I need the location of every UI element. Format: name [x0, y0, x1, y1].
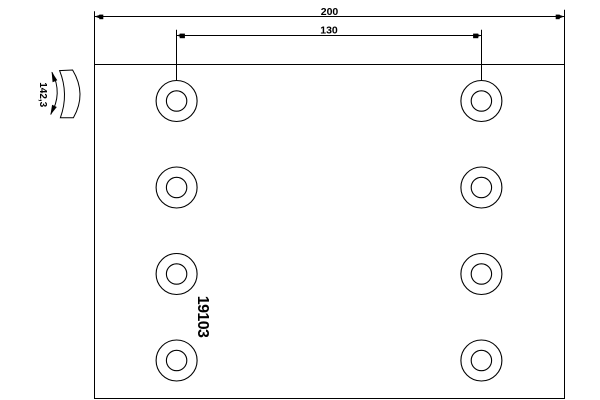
svg-text:130: 130 [320, 24, 338, 36]
svg-text:19103: 19103 [194, 296, 211, 338]
svg-text:200: 200 [321, 6, 339, 18]
svg-text:142,3: 142,3 [37, 82, 48, 107]
